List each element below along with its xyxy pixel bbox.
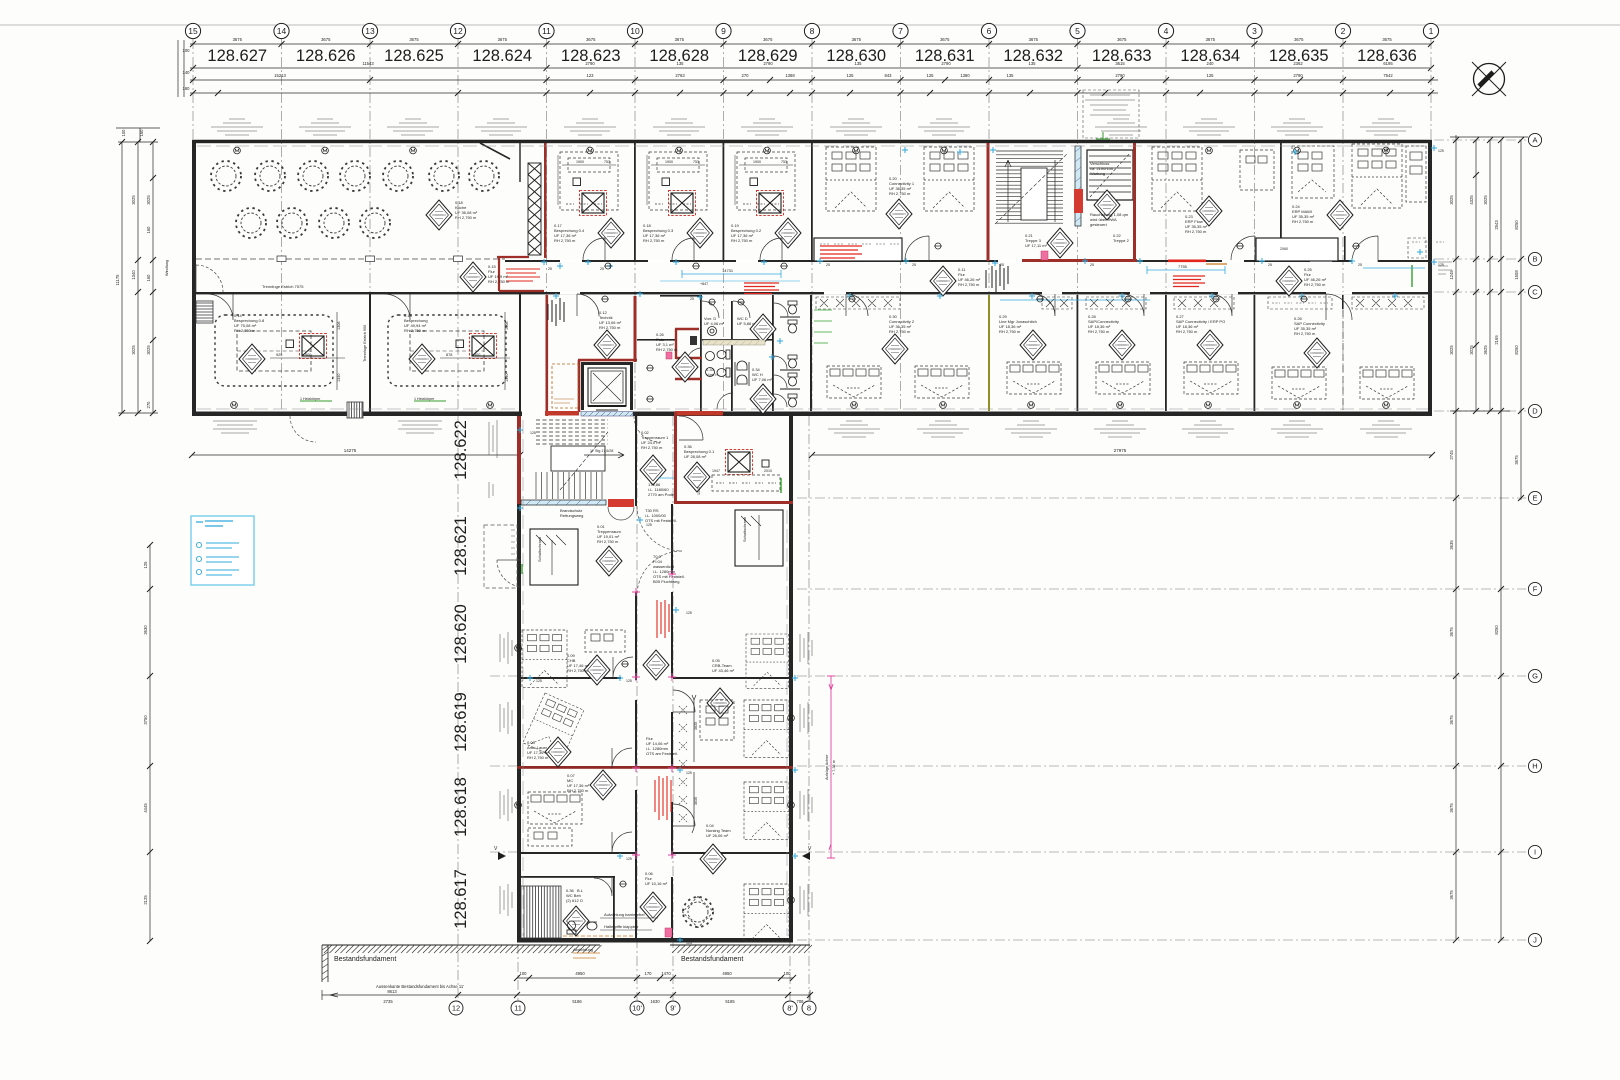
svg-text:17 Stg 17,6/28: 17 Stg 17,6/28: [590, 449, 613, 453]
svg-text:2165: 2165: [1494, 335, 1499, 345]
svg-text:Aufzüge Achse: Aufzüge Achse: [825, 755, 829, 780]
svg-text:128.626: 128.626: [296, 47, 356, 65]
svg-text:170: 170: [645, 971, 653, 976]
svg-text:Aufzählung barrierefrei: Aufzählung barrierefrei: [604, 912, 645, 917]
svg-text:125: 125: [847, 73, 855, 78]
svg-text:3675: 3675: [852, 37, 862, 42]
svg-text:1340: 1340: [505, 374, 509, 382]
svg-text:B05 Fluchtweg: B05 Fluchtweg: [653, 579, 679, 584]
svg-text:UF 17,11 m²: UF 17,11 m²: [1025, 243, 1048, 248]
svg-text:1308: 1308: [505, 322, 509, 330]
svg-text:3675: 3675: [1449, 627, 1454, 637]
svg-text:135: 135: [677, 61, 685, 66]
svg-text:270: 270: [146, 401, 151, 409]
svg-text:4445: 4445: [143, 803, 148, 813]
svg-text:1: 1: [1429, 26, 1434, 36]
svg-text:128.618: 128.618: [452, 777, 470, 837]
svg-text:1900: 1900: [665, 160, 673, 164]
svg-text:OTS am Feststell.: OTS am Feststell.: [646, 751, 678, 756]
svg-text:15: 15: [188, 26, 198, 36]
svg-text:135: 135: [855, 61, 863, 66]
svg-text:8: 8: [807, 1004, 811, 1013]
svg-text:128.617: 128.617: [452, 869, 470, 929]
svg-text:2790: 2790: [1115, 73, 1125, 78]
svg-text:7755: 7755: [1178, 264, 1188, 269]
svg-text:1470: 1470: [661, 971, 671, 976]
svg-text:8250: 8250: [1494, 625, 1499, 635]
svg-text:RH 2,750 m: RH 2,750 m: [404, 328, 426, 333]
svg-text:RH 2,750 m: RH 2,750 m: [889, 329, 911, 334]
svg-text:1630: 1630: [650, 999, 660, 1004]
svg-text:Bestandsfundament: Bestandsfundament: [334, 956, 396, 963]
svg-text:125: 125: [1207, 73, 1215, 78]
svg-text:10: 10: [630, 26, 640, 36]
svg-text:27975: 27975: [1114, 448, 1127, 453]
svg-text:3025: 3025: [131, 195, 136, 205]
svg-text:3025: 3025: [131, 345, 136, 355]
svg-text:3635: 3635: [694, 797, 698, 805]
svg-text:Bestandsfundament: Bestandsfundament: [681, 956, 743, 963]
svg-text:25: 25: [912, 263, 916, 267]
svg-text:RH 2,750 m: RH 2,750 m: [567, 668, 589, 673]
svg-text:8': 8': [787, 1004, 793, 1013]
svg-text:RH 2,750 m: RH 2,750 m: [597, 539, 619, 544]
svg-text:UF 26,06 m²: UF 26,06 m²: [706, 833, 729, 838]
svg-text:3675: 3675: [586, 37, 596, 42]
svg-text:4950: 4950: [575, 971, 585, 976]
svg-text:RH 2,750 m: RH 2,750 m: [731, 238, 753, 243]
svg-text:3: 3: [1252, 26, 1257, 36]
svg-text:RH 2,750 m: RH 2,750 m: [1088, 329, 1110, 334]
svg-text:3750: 3750: [143, 715, 148, 725]
svg-text:RH 2,750 m: RH 2,750 m: [958, 282, 980, 287]
svg-text:8613: 8613: [387, 989, 397, 994]
svg-text:1900: 1900: [753, 160, 761, 164]
svg-text:2790: 2790: [763, 61, 773, 66]
svg-text:3635: 3635: [694, 722, 698, 730]
svg-text:UF 7,06 m²: UF 7,06 m²: [752, 377, 773, 382]
svg-text:125: 125: [686, 611, 692, 615]
svg-text:3675: 3675: [1029, 37, 1039, 42]
svg-text:7542: 7542: [1383, 73, 1393, 78]
svg-text:UF 28,08 m²: UF 28,08 m²: [684, 454, 707, 459]
svg-text:RH 2,750 m: RH 2,750 m: [656, 347, 678, 352]
svg-text:925: 925: [276, 353, 282, 357]
svg-text:RH 2,750 m: RH 2,750 m: [1294, 331, 1316, 336]
svg-text:2543: 2543: [1494, 220, 1499, 230]
svg-text:Windfang: Windfang: [165, 260, 169, 276]
svg-text:Schaltschrank: Schaltschrank: [742, 517, 747, 542]
svg-text:RH 2,750 m: RH 2,750 m: [641, 445, 663, 450]
svg-text:11175: 11175: [115, 274, 120, 286]
svg-text:160: 160: [146, 274, 151, 282]
svg-text:Treppe 2: Treppe 2: [1113, 238, 1130, 243]
svg-text:3675: 3675: [409, 37, 419, 42]
svg-text:11: 11: [514, 1004, 522, 1013]
svg-text:900: 900: [474, 353, 480, 357]
svg-text:Wartung: Wartung: [1090, 171, 1105, 176]
svg-text:RH 2,750 m: RH 2,750 m: [643, 238, 665, 243]
svg-text:3675: 3675: [1382, 37, 1392, 42]
svg-text:5: 5: [1075, 26, 1080, 36]
svg-text:1340: 1340: [337, 374, 341, 382]
svg-text:160: 160: [183, 86, 191, 91]
svg-text:128.622: 128.622: [452, 420, 470, 480]
svg-text:3025: 3025: [1449, 195, 1454, 205]
svg-text:878: 878: [446, 353, 452, 357]
svg-text:14275: 14275: [344, 448, 357, 453]
svg-text:RH 2,750 m: RH 2,750 m: [1304, 282, 1326, 287]
svg-text:25: 25: [548, 267, 552, 271]
svg-text:A: A: [1532, 136, 1537, 145]
svg-text:8: 8: [810, 26, 815, 36]
svg-text:10': 10': [632, 1004, 642, 1013]
svg-text:3675: 3675: [1449, 715, 1454, 725]
svg-text:3025: 3025: [1449, 345, 1454, 355]
svg-text:RH 2,750 m: RH 2,750 m: [455, 215, 477, 220]
svg-text:I: I: [1534, 848, 1536, 857]
svg-text:3675: 3675: [1294, 37, 1304, 42]
svg-text:3675: 3675: [1206, 37, 1216, 42]
svg-text:11: 11: [542, 26, 551, 36]
svg-text:25: 25: [1090, 263, 1094, 267]
svg-text:2010: 2010: [764, 469, 772, 473]
svg-text:160: 160: [139, 129, 144, 137]
svg-text:270: 270: [742, 73, 750, 78]
svg-text:C: C: [1532, 288, 1538, 297]
svg-text:2060: 2060: [1280, 247, 1288, 251]
svg-text:100: 100: [520, 971, 528, 976]
svg-text:1340: 1340: [131, 270, 136, 280]
svg-text:1508: 1508: [1514, 270, 1519, 280]
svg-text:140: 140: [183, 70, 191, 75]
svg-text:1900: 1900: [576, 160, 584, 164]
svg-text:14731: 14731: [722, 268, 734, 273]
svg-text:13: 13: [365, 26, 375, 36]
svg-text:1415: 1415: [697, 487, 701, 495]
svg-text:125: 125: [646, 523, 652, 527]
svg-text:753: 753: [781, 160, 787, 164]
svg-text:1 Heizkörper: 1 Heizkörper: [414, 397, 435, 401]
svg-text:1 Heizkörper: 1 Heizkörper: [300, 397, 321, 401]
svg-text:4: 4: [1164, 26, 1169, 36]
svg-text:1947: 1947: [712, 469, 720, 473]
svg-text:753: 753: [693, 160, 699, 164]
svg-text:25: 25: [826, 263, 830, 267]
svg-text:240: 240: [1207, 61, 1215, 66]
svg-text:25: 25: [1268, 263, 1272, 267]
svg-text:753: 753: [604, 160, 610, 164]
svg-text:14: 14: [277, 26, 287, 36]
svg-text:6195: 6195: [1383, 61, 1393, 66]
svg-text:3025: 3025: [1469, 345, 1474, 355]
svg-text:3675: 3675: [1514, 455, 1519, 465]
svg-text:900: 900: [305, 353, 311, 357]
svg-text:128.621: 128.621: [452, 516, 470, 576]
svg-text:3025: 3025: [146, 195, 151, 205]
svg-text:5186: 5186: [572, 999, 582, 1004]
svg-text:3675: 3675: [1449, 803, 1454, 813]
svg-text:UF 4,06 m²: UF 4,06 m²: [704, 321, 725, 326]
svg-text:128.620: 128.620: [452, 604, 470, 664]
svg-text:128.619: 128.619: [452, 692, 470, 752]
svg-text:+ 7,32 m: + 7,32 m: [832, 760, 836, 775]
svg-text:100: 100: [784, 971, 792, 976]
svg-text:1308: 1308: [337, 322, 341, 330]
svg-text:100: 100: [183, 48, 191, 53]
svg-text:3675: 3675: [1449, 890, 1454, 900]
svg-text:UF 43,46 m²: UF 43,46 m²: [712, 668, 735, 673]
svg-text:RH 2,750 m: RH 2,750 m: [599, 325, 621, 330]
svg-text:125: 125: [686, 771, 692, 775]
svg-text:1388: 1388: [785, 73, 795, 78]
svg-text:125: 125: [686, 941, 692, 945]
svg-text:3615: 3615: [1115, 61, 1125, 66]
svg-text:3675: 3675: [233, 37, 243, 42]
svg-text:8250: 8250: [1514, 220, 1519, 230]
svg-text:2790: 2790: [941, 61, 951, 66]
svg-text:RH 2,750 m: RH 2,750 m: [1176, 329, 1198, 334]
svg-text:1245: 1245: [1449, 270, 1454, 280]
svg-text:100: 100: [121, 129, 126, 137]
svg-text:125: 125: [143, 561, 148, 569]
svg-text:RH 2,750 m: RH 2,750 m: [1185, 229, 1207, 234]
svg-text:125: 125: [626, 679, 632, 683]
svg-text:gesteuert: gesteuert: [1090, 222, 1108, 227]
svg-text:11543: 11543: [362, 61, 374, 66]
svg-text:2735: 2735: [383, 999, 393, 1004]
svg-text:15213: 15213: [274, 73, 286, 78]
svg-text:RH 2,750 m: RH 2,750 m: [488, 279, 510, 284]
svg-text:25: 25: [600, 267, 604, 271]
svg-text:B: B: [1532, 255, 1537, 264]
svg-text:3675: 3675: [498, 37, 508, 42]
svg-text:UF 10,16 m²: UF 10,16 m²: [645, 881, 668, 886]
svg-text:3025: 3025: [1483, 195, 1488, 205]
svg-text:3675: 3675: [1117, 37, 1127, 42]
svg-text:12: 12: [452, 1004, 460, 1013]
svg-text:2: 2: [1341, 26, 1346, 36]
svg-text:J: J: [1533, 936, 1537, 945]
svg-text:4950: 4950: [722, 971, 732, 976]
svg-text:9': 9': [670, 1004, 676, 1013]
svg-text:160: 160: [146, 226, 151, 234]
svg-text:3675: 3675: [675, 37, 685, 42]
svg-text:128.624: 128.624: [472, 47, 532, 65]
svg-text:RH 2,750 m: RH 2,750 m: [527, 755, 549, 760]
svg-text:3630: 3630: [143, 625, 148, 635]
svg-text:3675: 3675: [940, 37, 950, 42]
svg-text:125: 125: [1438, 149, 1444, 153]
svg-text:RH 2,750 m: RH 2,750 m: [999, 329, 1021, 334]
svg-text:Trennfuge Estrich 900: Trennfuge Estrich 900: [363, 325, 367, 362]
svg-text:+847: +847: [700, 282, 708, 286]
svg-text:5185: 5185: [725, 999, 735, 1004]
svg-text:H: H: [1532, 762, 1537, 771]
svg-text:708: 708: [797, 999, 805, 1004]
svg-text:125: 125: [530, 431, 536, 435]
svg-text:(2) 612 O: (2) 612 O: [566, 898, 583, 903]
svg-text:RH 2,750 m: RH 2,750 m: [234, 328, 256, 333]
svg-text:Haltegriffe klappbar: Haltegriffe klappbar: [604, 924, 639, 929]
svg-text:6: 6: [987, 26, 992, 36]
svg-text:128.627: 128.627: [207, 47, 267, 65]
svg-text:RH 2,750 m: RH 2,750 m: [889, 191, 911, 196]
svg-text:2790: 2790: [585, 61, 595, 66]
svg-text:843: 843: [885, 73, 893, 78]
svg-text:Trennfuge Estrich 7575: Trennfuge Estrich 7575: [262, 284, 304, 289]
svg-text:3635: 3635: [1449, 540, 1454, 550]
svg-text:2790: 2790: [1293, 73, 1303, 78]
svg-text:125: 125: [536, 679, 542, 683]
svg-text:Rettungsweg: Rettungsweg: [560, 513, 583, 518]
svg-text:3675: 3675: [763, 37, 773, 42]
svg-text:2770 am Podest: 2770 am Podest: [648, 492, 678, 497]
svg-text:25: 25: [690, 297, 694, 301]
svg-text:RH 2,750 m: RH 2,750 m: [1292, 219, 1314, 224]
svg-text:3675: 3675: [321, 37, 331, 42]
svg-text:128.625: 128.625: [384, 47, 444, 65]
svg-text:12: 12: [453, 26, 463, 36]
svg-text:123: 123: [587, 73, 595, 78]
svg-text:2745: 2745: [1449, 450, 1454, 460]
svg-text:8250: 8250: [1514, 345, 1519, 355]
svg-text:9: 9: [721, 26, 726, 36]
svg-text:G: G: [1532, 672, 1538, 681]
svg-text:2763: 2763: [675, 73, 685, 78]
svg-text:125: 125: [626, 857, 632, 861]
svg-text:2125: 2125: [143, 895, 148, 905]
svg-text:4325: 4325: [1469, 195, 1474, 205]
svg-text:125: 125: [1438, 263, 1444, 267]
svg-text:E: E: [1532, 494, 1537, 503]
svg-text:135: 135: [1029, 61, 1037, 66]
svg-text:25: 25: [1358, 263, 1362, 267]
svg-text:D: D: [1532, 407, 1538, 416]
svg-text:135: 135: [1007, 73, 1015, 78]
svg-text:Schaltschrank: Schaltschrank: [537, 537, 542, 562]
svg-text:RH 2,750 m: RH 2,750 m: [554, 238, 576, 243]
svg-text:3625: 3625: [1483, 345, 1488, 355]
svg-text:7: 7: [898, 26, 903, 36]
svg-text:25: 25: [1000, 263, 1004, 267]
svg-text:F: F: [1533, 585, 1538, 594]
svg-text:3025: 3025: [146, 345, 151, 355]
svg-text:125: 125: [927, 73, 935, 78]
svg-text:2362: 2362: [1293, 61, 1303, 66]
svg-text:1380: 1380: [960, 73, 970, 78]
svg-text:Abdichtung: Abdichtung: [573, 947, 593, 952]
